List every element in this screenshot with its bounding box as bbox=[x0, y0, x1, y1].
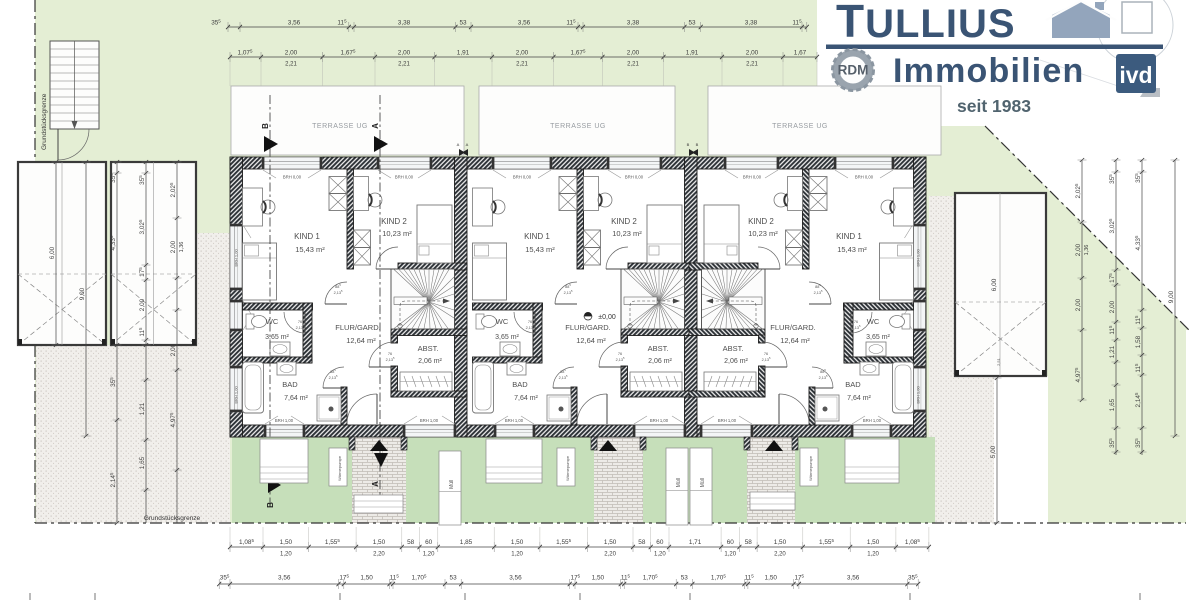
svg-text:3,65 m²: 3,65 m² bbox=[265, 334, 289, 341]
svg-text:KIND 2: KIND 2 bbox=[611, 217, 637, 226]
svg-text:7,64 m²: 7,64 m² bbox=[847, 395, 871, 402]
svg-text:FLUR/GARD.: FLUR/GARD. bbox=[770, 323, 815, 332]
svg-text:3,38: 3,38 bbox=[745, 20, 758, 27]
svg-text:76: 76 bbox=[388, 352, 392, 356]
svg-text:BRH 1,00: BRH 1,00 bbox=[420, 418, 439, 423]
svg-text:KIND 2: KIND 2 bbox=[381, 217, 407, 226]
svg-text:7,64 m²: 7,64 m² bbox=[514, 395, 538, 402]
svg-text:1,20: 1,20 bbox=[511, 552, 523, 558]
svg-text:A: A bbox=[466, 142, 469, 147]
svg-text:2,20: 2,20 bbox=[774, 552, 786, 558]
svg-text:TERRASSE UG: TERRASSE UG bbox=[772, 123, 828, 130]
svg-text:2,00: 2,00 bbox=[516, 50, 529, 57]
svg-text:Immobilien: Immobilien bbox=[893, 52, 1084, 90]
svg-text:KIND 2: KIND 2 bbox=[748, 217, 774, 226]
svg-text:1,85: 1,85 bbox=[460, 539, 473, 546]
svg-text:6,00: 6,00 bbox=[991, 278, 998, 291]
svg-text:BRH 0,00: BRH 0,00 bbox=[855, 175, 874, 180]
svg-text:76: 76 bbox=[764, 352, 768, 356]
svg-text:2,20: 2,20 bbox=[373, 552, 385, 558]
svg-text:2,00: 2,00 bbox=[1075, 243, 1082, 256]
svg-text:3,65 m²: 3,65 m² bbox=[866, 334, 890, 341]
svg-text:Müll: Müll bbox=[700, 478, 706, 487]
svg-text:12,64 m²: 12,64 m² bbox=[576, 336, 606, 345]
svg-text:KIND 1: KIND 1 bbox=[294, 232, 320, 241]
svg-text:3,65 m²: 3,65 m² bbox=[495, 334, 519, 341]
svg-text:ivd: ivd bbox=[1119, 62, 1152, 88]
svg-text:76: 76 bbox=[854, 320, 858, 324]
svg-text:2,00: 2,00 bbox=[398, 50, 411, 57]
svg-text:1,91: 1,91 bbox=[686, 50, 699, 57]
svg-text:BRH 1,00: BRH 1,00 bbox=[650, 418, 669, 423]
svg-text:1,65: 1,65 bbox=[139, 456, 146, 469]
svg-text:B: B bbox=[696, 142, 699, 147]
svg-text:2,21: 2,21 bbox=[746, 62, 758, 68]
svg-text:76: 76 bbox=[298, 320, 302, 324]
svg-text:Müll: Müll bbox=[449, 480, 455, 489]
svg-text:2,00: 2,00 bbox=[170, 343, 177, 356]
svg-text:BAD: BAD bbox=[512, 380, 528, 389]
svg-text:KIND 1: KIND 1 bbox=[836, 232, 862, 241]
svg-text:KIND 1: KIND 1 bbox=[524, 232, 550, 241]
svg-text:TERRASSE UG: TERRASSE UG bbox=[312, 123, 368, 130]
svg-text:5,00: 5,00 bbox=[990, 445, 997, 458]
svg-text:1,67: 1,67 bbox=[794, 50, 807, 57]
svg-text:2,21: 2,21 bbox=[516, 62, 528, 68]
svg-text:58: 58 bbox=[407, 539, 415, 546]
svg-text:58: 58 bbox=[638, 539, 646, 546]
svg-text:53: 53 bbox=[681, 575, 689, 582]
svg-text:1,58: 1,58 bbox=[1135, 335, 1142, 348]
svg-text:WC: WC bbox=[496, 317, 509, 326]
svg-text:WC: WC bbox=[867, 317, 880, 326]
svg-text:1,50: 1,50 bbox=[360, 575, 373, 582]
svg-text:15,43 m²: 15,43 m² bbox=[525, 245, 555, 254]
svg-text:2,51: 2,51 bbox=[996, 357, 1001, 366]
svg-text:ABST.: ABST. bbox=[648, 344, 669, 353]
svg-text:BRH 1,00: BRH 1,00 bbox=[234, 386, 239, 404]
svg-text:TERRASSE UG: TERRASSE UG bbox=[550, 123, 606, 130]
svg-text:BRH 0,00: BRH 0,00 bbox=[625, 175, 644, 180]
svg-text:1,50: 1,50 bbox=[604, 539, 617, 546]
svg-text:12,64 m²: 12,64 m² bbox=[346, 336, 376, 345]
svg-text:BRH 1,00: BRH 1,00 bbox=[916, 386, 921, 404]
svg-text:Wärmepumpe: Wärmepumpe bbox=[808, 455, 813, 481]
svg-text:1,65: 1,65 bbox=[1109, 398, 1116, 411]
svg-text:2,21: 2,21 bbox=[398, 62, 410, 68]
svg-text:1,20: 1,20 bbox=[280, 552, 292, 558]
svg-text:1,21: 1,21 bbox=[1109, 345, 1116, 358]
svg-text:15,43 m²: 15,43 m² bbox=[837, 245, 867, 254]
svg-text:9,00: 9,00 bbox=[1168, 290, 1175, 303]
svg-text:1,50: 1,50 bbox=[867, 539, 880, 546]
svg-text:2,21: 2,21 bbox=[285, 62, 297, 68]
svg-text:2,00: 2,00 bbox=[285, 50, 298, 57]
svg-text:BRH 1,00: BRH 1,00 bbox=[234, 249, 239, 267]
svg-text:1,36: 1,36 bbox=[179, 242, 185, 253]
svg-text:BRH 0,00: BRH 0,00 bbox=[283, 175, 302, 180]
svg-text:A: A bbox=[371, 123, 380, 129]
svg-text:BAD: BAD bbox=[282, 380, 298, 389]
svg-text:TULLIUS: TULLIUS bbox=[836, 0, 1016, 47]
svg-text:2,00: 2,00 bbox=[170, 240, 177, 253]
svg-text:1,91: 1,91 bbox=[457, 50, 470, 57]
svg-text:Grundstücksgrenze: Grundstücksgrenze bbox=[144, 515, 201, 522]
svg-text:53: 53 bbox=[688, 20, 696, 27]
svg-text:BRH 0,00: BRH 0,00 bbox=[513, 175, 532, 180]
svg-text:FLUR/GARD.: FLUR/GARD. bbox=[335, 323, 380, 332]
svg-text:RDM: RDM bbox=[838, 63, 869, 78]
svg-text:1,71: 1,71 bbox=[689, 539, 702, 546]
svg-text:1,20: 1,20 bbox=[724, 552, 736, 558]
svg-text:BRH 1,00: BRH 1,00 bbox=[275, 418, 294, 423]
svg-text:±0,00: ±0,00 bbox=[598, 314, 616, 321]
svg-text:9,00: 9,00 bbox=[79, 287, 86, 300]
svg-text:2,06 m²: 2,06 m² bbox=[724, 358, 748, 365]
svg-text:12,64 m²: 12,64 m² bbox=[780, 336, 810, 345]
svg-text:1,50: 1,50 bbox=[774, 539, 787, 546]
svg-text:1,50: 1,50 bbox=[373, 539, 386, 546]
svg-text:58: 58 bbox=[745, 539, 753, 546]
svg-text:53: 53 bbox=[450, 575, 458, 582]
svg-text:60: 60 bbox=[425, 539, 433, 546]
svg-text:6,00: 6,00 bbox=[49, 246, 56, 259]
svg-text:A: A bbox=[371, 481, 380, 487]
svg-text:BRH 1,00: BRH 1,00 bbox=[718, 418, 737, 423]
svg-text:ABST.: ABST. bbox=[418, 344, 439, 353]
svg-text:1,50: 1,50 bbox=[511, 539, 524, 546]
svg-text:B: B bbox=[261, 123, 270, 129]
svg-text:BRH 1,00: BRH 1,00 bbox=[505, 418, 524, 423]
svg-text:A: A bbox=[457, 142, 460, 147]
svg-text:2,06 m²: 2,06 m² bbox=[418, 358, 442, 365]
svg-text:15,43 m²: 15,43 m² bbox=[295, 245, 325, 254]
svg-text:1,50: 1,50 bbox=[280, 539, 293, 546]
svg-text:3,56: 3,56 bbox=[847, 575, 860, 582]
svg-text:seit 1983: seit 1983 bbox=[957, 96, 1031, 116]
svg-text:2,20: 2,20 bbox=[604, 552, 616, 558]
svg-text:B: B bbox=[687, 142, 690, 147]
svg-text:2,21: 2,21 bbox=[627, 62, 639, 68]
svg-text:BRH 0,00: BRH 0,00 bbox=[743, 175, 762, 180]
svg-text:60: 60 bbox=[656, 539, 664, 546]
svg-text:1,50: 1,50 bbox=[765, 575, 778, 582]
svg-text:3,56: 3,56 bbox=[509, 575, 522, 582]
svg-text:WC: WC bbox=[266, 317, 279, 326]
svg-text:10,23 m²: 10,23 m² bbox=[748, 229, 778, 238]
svg-text:BRH 1,00: BRH 1,00 bbox=[863, 418, 882, 423]
svg-text:3,56: 3,56 bbox=[518, 20, 531, 27]
svg-text:10,23 m²: 10,23 m² bbox=[382, 229, 412, 238]
svg-text:3,56: 3,56 bbox=[288, 20, 301, 27]
svg-text:3,56: 3,56 bbox=[278, 575, 291, 582]
svg-text:2,00: 2,00 bbox=[139, 298, 146, 311]
svg-text:FLUR/GARD.: FLUR/GARD. bbox=[565, 323, 610, 332]
svg-text:60: 60 bbox=[727, 539, 735, 546]
svg-text:1,20: 1,20 bbox=[867, 552, 879, 558]
svg-text:1,21: 1,21 bbox=[139, 402, 146, 415]
svg-text:3,38: 3,38 bbox=[398, 20, 411, 27]
svg-text:2,06 m²: 2,06 m² bbox=[648, 358, 672, 365]
svg-text:BRH 0,00: BRH 0,00 bbox=[395, 175, 414, 180]
svg-text:1,50: 1,50 bbox=[592, 575, 605, 582]
svg-text:B: B bbox=[266, 502, 275, 508]
svg-text:BAD: BAD bbox=[845, 380, 861, 389]
svg-text:Wärmepumpe: Wärmepumpe bbox=[337, 455, 342, 481]
svg-text:2,00: 2,00 bbox=[627, 50, 640, 57]
svg-text:2,00: 2,00 bbox=[746, 50, 759, 57]
svg-text:1,36: 1,36 bbox=[1084, 245, 1090, 256]
svg-text:1,20: 1,20 bbox=[423, 552, 435, 558]
svg-text:Wärmepumpe: Wärmepumpe bbox=[565, 455, 570, 481]
svg-text:Müll: Müll bbox=[676, 478, 682, 487]
svg-text:76: 76 bbox=[528, 320, 532, 324]
svg-text:7,64 m²: 7,64 m² bbox=[284, 395, 308, 402]
svg-text:2,00: 2,00 bbox=[1075, 298, 1082, 311]
svg-text:76: 76 bbox=[618, 352, 622, 356]
svg-text:10,23 m²: 10,23 m² bbox=[612, 229, 642, 238]
svg-text:Grundstücksgrenze: Grundstücksgrenze bbox=[41, 93, 48, 150]
svg-text:2,00: 2,00 bbox=[1109, 300, 1116, 313]
svg-text:1,20: 1,20 bbox=[654, 552, 666, 558]
svg-text:3,38: 3,38 bbox=[627, 20, 640, 27]
svg-text:53: 53 bbox=[459, 20, 467, 27]
svg-text:ABST.: ABST. bbox=[723, 344, 744, 353]
svg-text:BRH 1,00: BRH 1,00 bbox=[916, 249, 921, 267]
